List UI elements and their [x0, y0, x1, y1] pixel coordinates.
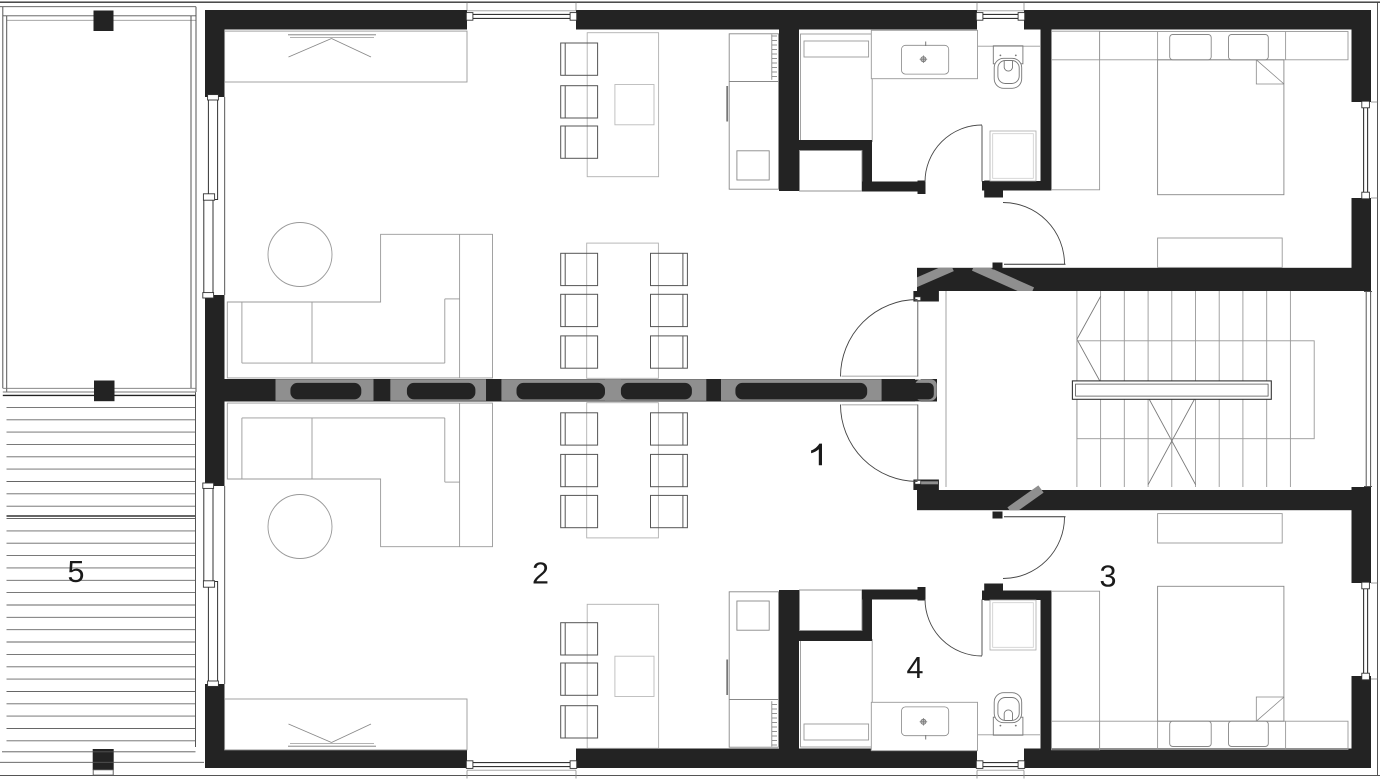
svg-text:2: 2	[532, 556, 549, 590]
svg-text:5: 5	[68, 555, 85, 589]
svg-text:3: 3	[1100, 560, 1117, 594]
svg-text:4: 4	[907, 651, 924, 685]
